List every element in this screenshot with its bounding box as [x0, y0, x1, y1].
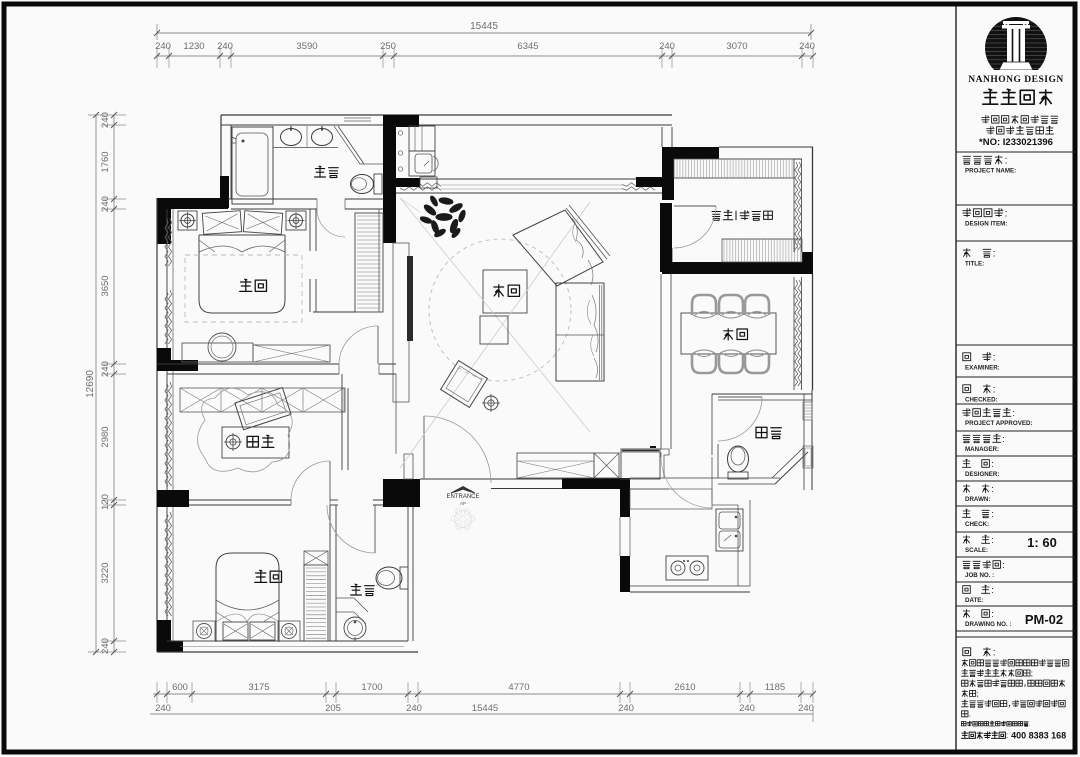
svg-text:2980: 2980 [100, 426, 111, 447]
svg-text:3650: 3650 [100, 275, 111, 296]
svg-text:250: 250 [380, 41, 396, 52]
svg-text::: : [991, 535, 994, 546]
svg-text:CHECKED:: CHECKED: [965, 397, 998, 404]
svg-text:DATE:: DATE: [965, 597, 983, 604]
svg-text:.: . [969, 710, 971, 719]
svg-text:15445: 15445 [472, 703, 498, 714]
svg-text:EXAMINER:: EXAMINER: [965, 365, 1000, 372]
svg-text:CHECK:: CHECK: [965, 521, 989, 528]
svg-text:;: ; [1031, 669, 1033, 678]
svg-text:240: 240 [100, 361, 111, 377]
svg-text:PROJECT APPROVED:: PROJECT APPROVED: [965, 420, 1033, 427]
svg-text:3175: 3175 [248, 682, 269, 693]
svg-text:AP: AP [460, 501, 466, 506]
svg-text:PROJECT NAME:: PROJECT NAME: [965, 168, 1016, 175]
svg-text:240: 240 [798, 703, 814, 714]
svg-text:DRAWN:: DRAWN: [965, 496, 990, 503]
svg-text::: : [1006, 731, 1008, 740]
svg-text:1: 60: 1: 60 [1027, 535, 1057, 550]
svg-text:3590: 3590 [296, 41, 317, 52]
svg-text:240: 240 [100, 196, 111, 212]
svg-text:240: 240 [618, 703, 634, 714]
svg-text:1760: 1760 [100, 151, 111, 172]
svg-text:TITLE:: TITLE: [965, 261, 984, 268]
svg-text:600: 600 [172, 682, 188, 693]
svg-text::: : [991, 609, 994, 620]
svg-text:JOB NO. :: JOB NO. : [965, 572, 994, 579]
svg-text:1700: 1700 [361, 682, 382, 693]
svg-text:3220: 3220 [100, 562, 111, 583]
svg-text:;: ; [977, 689, 979, 698]
svg-text::: : [991, 585, 994, 596]
svg-text:ENTRANCE: ENTRANCE [446, 494, 479, 500]
svg-text:PM-02: PM-02 [1025, 612, 1063, 627]
svg-text:2610: 2610 [674, 682, 695, 693]
svg-text:205: 205 [325, 703, 341, 714]
svg-text:DRAWING NO. :: DRAWING NO. : [965, 621, 1011, 628]
svg-text::: : [1002, 434, 1005, 445]
svg-text:240: 240 [155, 703, 171, 714]
svg-text:3070: 3070 [726, 41, 747, 52]
svg-text::: : [993, 352, 996, 363]
svg-text::: : [991, 459, 994, 470]
svg-text::: : [993, 384, 996, 395]
svg-text:1185: 1185 [765, 682, 785, 693]
svg-text:240: 240 [739, 703, 755, 714]
svg-text:240: 240 [217, 41, 233, 52]
svg-text::: : [993, 248, 996, 259]
svg-text:240: 240 [799, 41, 815, 52]
svg-text::: : [1012, 408, 1015, 419]
svg-text::: : [993, 647, 996, 658]
svg-text:15445: 15445 [470, 21, 498, 32]
svg-text:240: 240 [659, 41, 675, 52]
svg-text:4770: 4770 [508, 682, 529, 693]
svg-text:NANHONG DESIGN: NANHONG DESIGN [968, 75, 1063, 85]
svg-text:*NO: I233021396: *NO: I233021396 [979, 137, 1053, 148]
svg-text:DESIGNER:: DESIGNER: [965, 471, 999, 478]
svg-text::: : [1005, 208, 1008, 219]
svg-text:12690: 12690 [85, 370, 96, 398]
svg-text:240: 240 [406, 703, 422, 714]
svg-text:400 8383 168: 400 8383 168 [1011, 731, 1066, 741]
svg-text::: : [1005, 155, 1008, 166]
svg-text::: : [991, 509, 994, 520]
svg-text:1230: 1230 [183, 41, 204, 52]
svg-text:6345: 6345 [517, 41, 538, 52]
svg-text:DESIGN ITEM:: DESIGN ITEM: [965, 221, 1007, 228]
svg-text:120: 120 [100, 494, 111, 510]
svg-text:240: 240 [100, 638, 111, 654]
svg-text:SCALE:: SCALE: [965, 547, 988, 554]
svg-text:240: 240 [100, 112, 111, 128]
svg-text:MANAGER:: MANAGER: [965, 446, 999, 453]
svg-text:240: 240 [155, 41, 171, 52]
svg-text::: : [1002, 560, 1005, 571]
svg-text::: : [991, 484, 994, 495]
